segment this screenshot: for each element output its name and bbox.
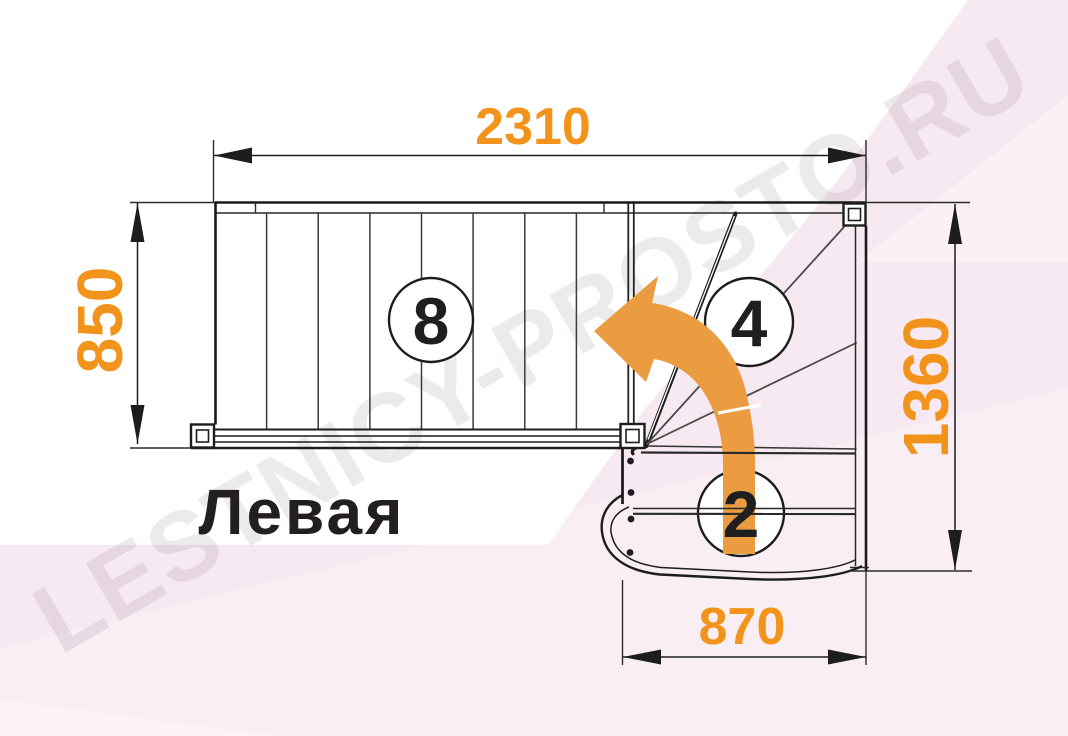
plan-title: Левая: [199, 480, 406, 544]
dimension-arrowheads: [131, 148, 963, 665]
dimension-bottom-label: 870: [699, 601, 786, 653]
step-count-bottom: 2: [723, 481, 760, 547]
dimension-left-label: 850: [68, 267, 132, 374]
dimension-top-label: 2310: [475, 101, 591, 153]
step-count-straight-flight: 8: [413, 288, 450, 354]
dimension-lines: [138, 156, 956, 658]
straight-flight-stringer: [191, 430, 621, 449]
stair-plan-diagram: LESTNICY-PROSTO.RU: [0, 0, 1068, 736]
step-count-winders: 4: [731, 290, 768, 356]
dimension-right-label: 1360: [894, 316, 958, 458]
